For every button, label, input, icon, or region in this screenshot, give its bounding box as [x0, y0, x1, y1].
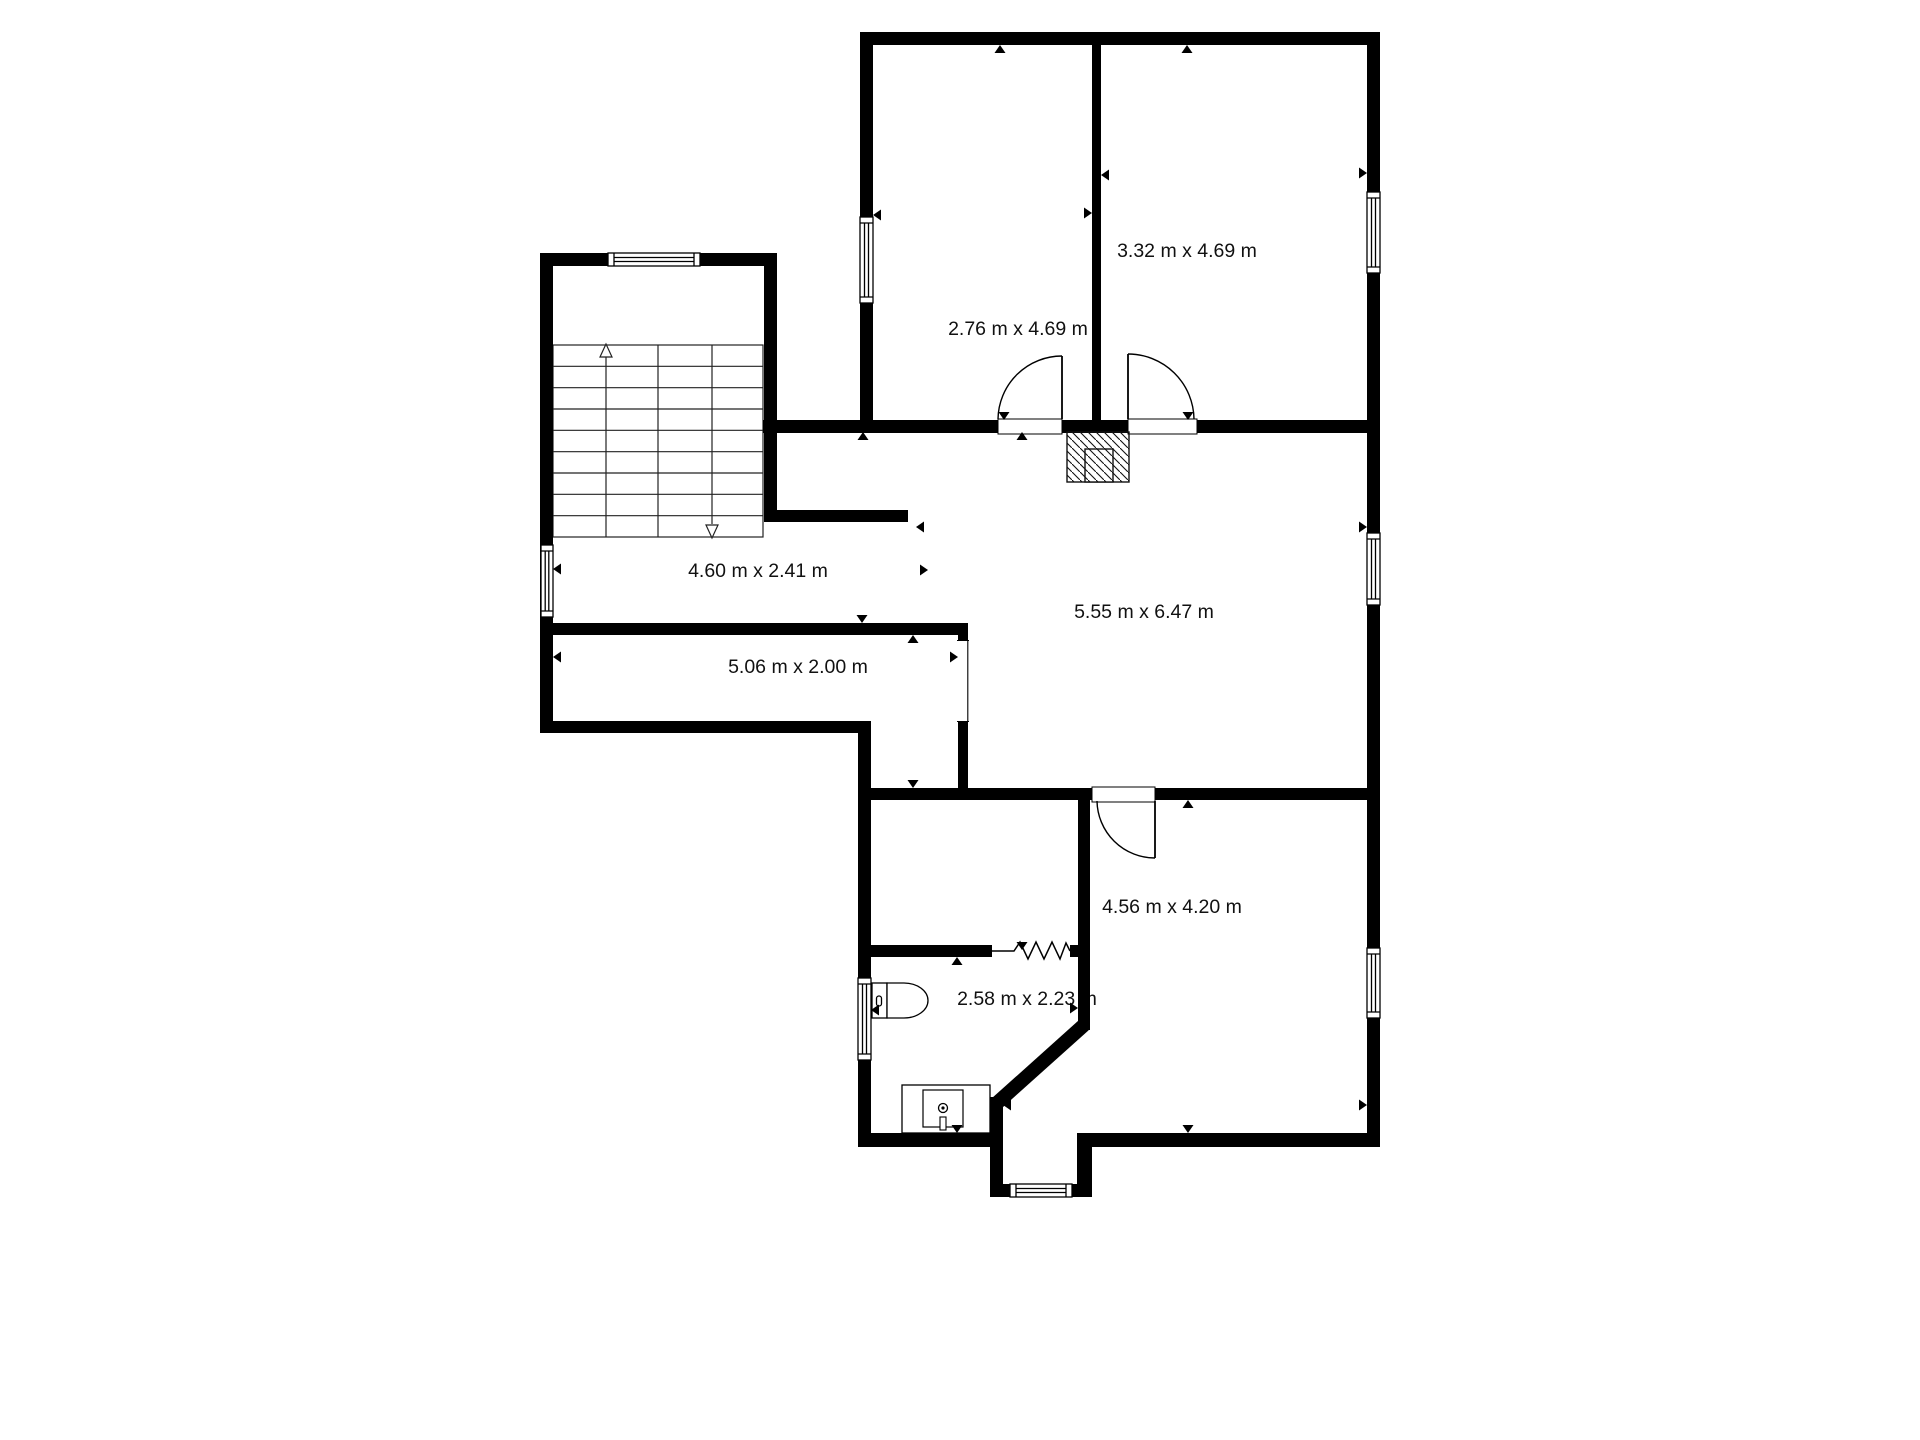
room-label-stair-hall: 4.60 m x 2.41 m [688, 560, 828, 582]
chimney-inner [1085, 449, 1113, 482]
chimney [1067, 432, 1129, 482]
wall-bathroom-top-west [870, 945, 992, 957]
toilet-icon [872, 983, 928, 1018]
wall-stub-hall [764, 510, 908, 522]
room-label-bedroom-bottom: 4.56 m x 4.20 m [1102, 896, 1242, 918]
window-stair-top [608, 253, 700, 266]
wall-bedrooms-bottom [763, 420, 1380, 433]
wall-pier-east [1077, 1133, 1092, 1197]
opening-corridor-living [957, 640, 969, 722]
window-bedroomTL-west [860, 217, 873, 303]
wall-top [860, 32, 1380, 45]
room-label-living-room: 5.55 m x 6.47 m [1074, 601, 1214, 623]
floor-plan-svg: 2.76 m x 4.69 m 3.32 m x 4.69 m 4.60 m x… [0, 0, 1920, 1440]
wall-stair-right [764, 253, 777, 522]
wall-bottom-west [858, 1133, 992, 1147]
room-label-corridor: 5.06 m x 2.00 m [728, 656, 868, 678]
window-hall-left [541, 545, 553, 617]
sink-vanity-icon [902, 1085, 990, 1133]
room-label-bedroom-top-right: 3.32 m x 4.69 m [1117, 240, 1257, 262]
window-bay-bottom [1010, 1184, 1072, 1197]
window-living-east [1367, 533, 1380, 605]
window-bathroom-left [858, 978, 871, 1060]
wall-corridor-top [541, 623, 968, 635]
wall-left-lower [858, 721, 871, 1147]
room-label-bedroom-top-left: 2.76 m x 4.69 m [948, 318, 1088, 340]
window-bedroomTR-east [1367, 192, 1380, 273]
wall-bathroom-top-east [1070, 945, 1090, 957]
wall-corridor-bottom [541, 721, 870, 733]
wall-bathroom-right [1078, 788, 1090, 1030]
wall-bottom-east [1092, 1133, 1380, 1147]
floor-plan-canvas: 2.76 m x 4.69 m 3.32 m x 4.69 m 4.60 m x… [0, 0, 1920, 1440]
wall-bedroom-divider [1092, 45, 1101, 432]
window-bedroomB-east [1367, 948, 1380, 1018]
wall-left-upper [540, 253, 553, 733]
